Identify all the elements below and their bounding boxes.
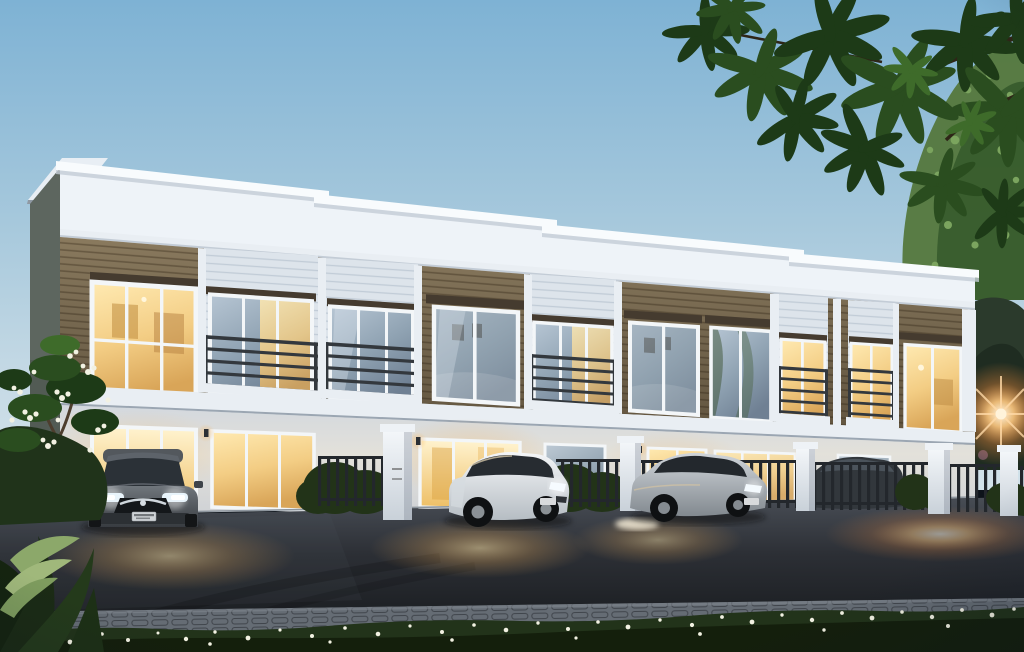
vignette bbox=[0, 0, 1024, 652]
render-canvas bbox=[0, 0, 1024, 652]
architectural-render bbox=[0, 0, 1024, 652]
